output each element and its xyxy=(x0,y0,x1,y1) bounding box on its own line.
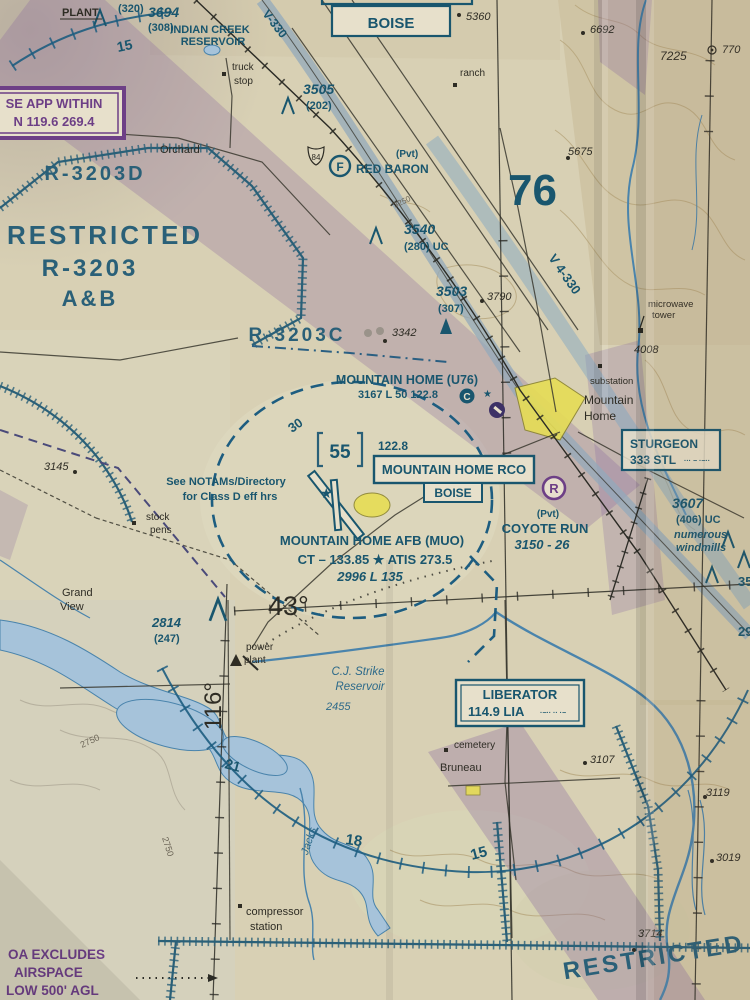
bruneau-label: Bruneau xyxy=(440,762,482,774)
shield-84-label: 84 xyxy=(312,153,321,162)
compressor-1: compressor xyxy=(246,906,304,918)
red-baron-pvt: (Pvt) xyxy=(396,149,418,160)
lon-116: 116° xyxy=(200,682,227,730)
ctaf-circle-letter: C xyxy=(463,392,470,403)
grand-1: Grand xyxy=(62,587,93,599)
restricted-main-2: R-3203 xyxy=(42,255,139,282)
notam-2: for Class D eff hrs xyxy=(183,491,278,503)
coyote-name: COYOTE RUN xyxy=(502,521,589,536)
stock-2: pens xyxy=(150,525,172,536)
mef-76: 76 xyxy=(508,166,557,215)
muni-star-icon: ★ xyxy=(483,389,492,400)
agl-3540: (280) UC xyxy=(404,241,449,253)
afb-data: 2996 L 135 xyxy=(336,569,403,584)
compressor-2: station xyxy=(250,921,282,933)
spot-5675: 5675 xyxy=(568,146,593,158)
reservoir-name-1: C.J. Strike xyxy=(331,666,384,678)
restricted-main-1: RESTRICTED xyxy=(7,220,203,250)
app-box-line2: N 119.6 269.4 xyxy=(14,114,96,129)
town-mountain: Mountain xyxy=(584,393,633,407)
elev-3694: 3694 xyxy=(148,4,179,20)
coyote-pvt: (Pvt) xyxy=(537,509,559,520)
coyote-run-circle-letter: R xyxy=(549,481,559,496)
reservoir-name-2: Reservoir xyxy=(335,681,385,693)
muni-name: MOUNTAIN HOME (U76) xyxy=(336,373,478,387)
liberator-freq: 114.9 LIA xyxy=(468,704,525,719)
app-box-line1: SE APP WITHIN xyxy=(6,96,103,111)
stock-1: stock xyxy=(146,512,170,523)
rco-boise: BOISE xyxy=(434,486,471,500)
red-baron-circle-letter: F xyxy=(336,160,343,174)
restricted-d-label: R-3203D xyxy=(44,163,145,185)
truck-stop-1: truck xyxy=(232,62,255,73)
grand-2: View xyxy=(60,601,84,613)
spot-3790: 3790 xyxy=(487,291,512,303)
sectional-chart-photo: ★ ★ C F R xyxy=(0,0,750,1000)
reservoir-elev: 2455 xyxy=(325,701,351,713)
spot-3107: 3107 xyxy=(590,754,615,766)
plant-label: PLANT xyxy=(62,7,99,19)
boise-box-label: BOISE xyxy=(368,15,415,32)
cemetery-label: cemetery xyxy=(454,740,495,751)
afb-freq: CT – 133.85 ★ ATIS 273.5 xyxy=(298,552,453,567)
ranch-label: ranch xyxy=(460,68,485,79)
muni-data: 3167 L 50 122.8 xyxy=(358,389,438,401)
ctaf-122-8: 122.8 xyxy=(378,439,408,453)
afb-name: MOUNTAIN HOME AFB (MUO) xyxy=(280,533,464,548)
power-1: power xyxy=(246,642,274,653)
obst-3505: 3505 xyxy=(303,81,334,97)
rco-name: MOUNTAIN HOME RCO xyxy=(382,462,526,477)
red-baron-name: RED BARON xyxy=(356,162,429,176)
agl-3505: (202) xyxy=(306,100,332,112)
power-2: plant xyxy=(244,655,266,666)
agl-3503: (307) xyxy=(438,303,464,315)
obst-2814: 2814 xyxy=(151,615,182,630)
lat-43: 43° xyxy=(268,591,309,621)
orchard-label: Orchard xyxy=(160,144,200,156)
coyote-data: 3150 - 26 xyxy=(515,537,571,552)
agl-2814: (247) xyxy=(154,633,180,645)
spot-5360: 5360 xyxy=(466,11,491,23)
obst-3503: 3503 xyxy=(436,283,467,299)
spot-3342: 3342 xyxy=(392,327,416,339)
liberator-name: LIBERATOR xyxy=(483,687,558,702)
spot-3145: 3145 xyxy=(44,461,69,473)
indian-creek-2: RESERVOIR xyxy=(181,36,246,48)
obst-3540: 3540 xyxy=(404,221,435,237)
agl-320: (320) xyxy=(118,3,144,15)
truck-stop-2: stop xyxy=(234,76,253,87)
indian-creek-1: INDIAN CREEK xyxy=(170,24,250,36)
restricted-main-3: A&B xyxy=(62,286,119,311)
afb-star-icon: ★ xyxy=(320,485,333,501)
notam-1: See NOTAMs/Directory xyxy=(166,476,286,488)
restricted-c-label: R-3203C xyxy=(248,325,345,346)
liberator-morse: ·−·· ·· ·− xyxy=(540,710,566,717)
class-d-ceiling: 55 xyxy=(329,442,351,463)
compass-18: 18 xyxy=(344,831,363,850)
